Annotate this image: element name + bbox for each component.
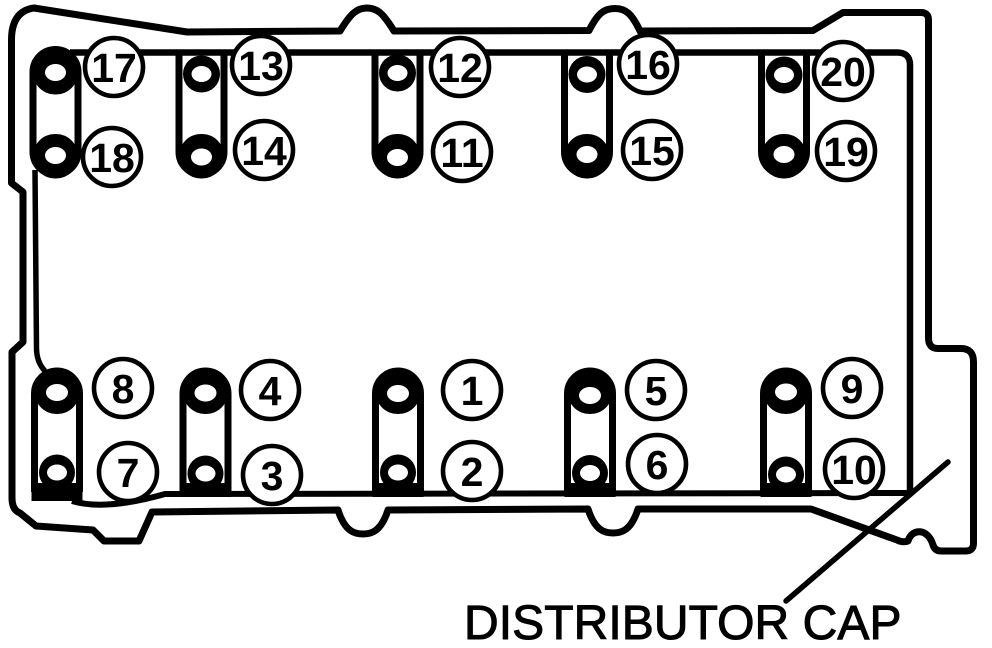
svg-text:7: 7: [117, 450, 140, 496]
svg-text:17: 17: [91, 45, 137, 91]
svg-text:6: 6: [646, 442, 669, 488]
svg-text:8: 8: [112, 366, 135, 412]
svg-text:5: 5: [645, 368, 668, 414]
svg-text:4: 4: [259, 368, 282, 414]
svg-text:16: 16: [625, 42, 671, 88]
svg-text:12: 12: [437, 45, 483, 91]
svg-text:13: 13: [238, 43, 284, 89]
svg-text:15: 15: [629, 128, 675, 174]
svg-text:11: 11: [440, 130, 483, 176]
svg-text:10: 10: [831, 447, 877, 493]
svg-text:9: 9: [841, 366, 864, 412]
svg-text:DISTRIBUTOR CAP: DISTRIBUTOR CAP: [464, 597, 902, 648]
svg-text:18: 18: [89, 135, 135, 181]
svg-text:14: 14: [241, 128, 287, 174]
svg-text:3: 3: [261, 453, 284, 499]
svg-text:19: 19: [823, 129, 869, 175]
svg-text:1: 1: [461, 368, 484, 414]
svg-text:20: 20: [820, 49, 866, 95]
svg-text:2: 2: [461, 449, 484, 495]
